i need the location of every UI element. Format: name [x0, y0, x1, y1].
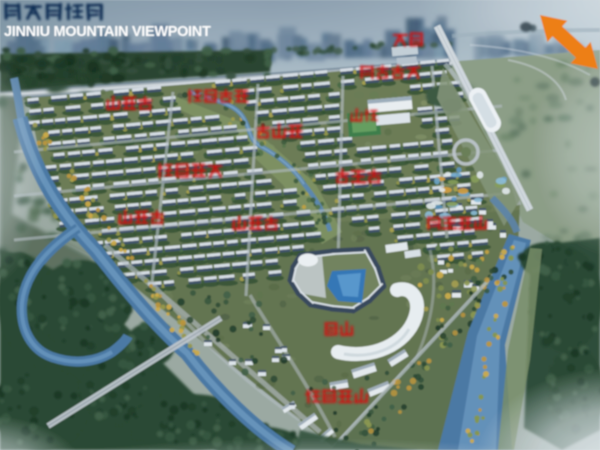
svg-text:JINNIU MOUNTAIN VIEWPOINT: JINNIU MOUNTAIN VIEWPOINT	[4, 24, 211, 40]
